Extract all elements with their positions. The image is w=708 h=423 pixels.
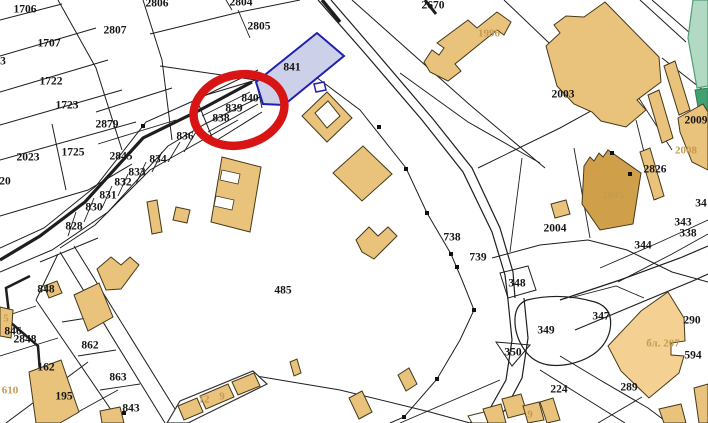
cadastral-map[interactable]: 1706280628042805267028071707384117222003… <box>0 0 708 423</box>
parcel-label-2845: 2845 <box>110 151 133 163</box>
building-label-12: 12 <box>199 394 211 406</box>
building-bar-485-1 <box>349 391 372 419</box>
building-2003 <box>546 2 661 127</box>
parcel-label-834: 834 <box>149 154 167 166</box>
parcel-label-1706: 1706 <box>14 4 37 16</box>
parcel-label-485: 485 <box>274 285 292 297</box>
parcel-label-594: 594 <box>684 350 702 362</box>
parcel-label-831: 831 <box>99 190 117 202</box>
parcel-label-349: 349 <box>537 325 555 337</box>
building-label-2005: 2005 <box>602 190 625 202</box>
parcel-label-1722: 1722 <box>40 76 63 88</box>
building-1996 <box>424 12 511 81</box>
parcel-label-34: 34 <box>695 198 707 210</box>
parcel-label-739: 739 <box>469 252 487 264</box>
parcel-label-738: 738 <box>443 232 461 244</box>
building-t-485 <box>356 227 397 259</box>
map-canvas[interactable]: 1706280628042805267028071707384117222003… <box>0 0 708 423</box>
parcel-label-1707: 1707 <box>38 38 61 50</box>
building-label-бл.-207: бл. 207 <box>646 338 680 350</box>
parcel-label-848: 848 <box>37 284 55 296</box>
parcel-label-2023: 2023 <box>17 152 40 164</box>
parcel-label-3: 3 <box>0 56 6 68</box>
parcel-label-862: 862 <box>81 340 99 352</box>
parcel-label-830: 830 <box>85 202 103 214</box>
parcel-label-2003: 2003 <box>552 89 575 101</box>
parcel-label-290: 290 <box>683 315 701 327</box>
parcel-label-838: 838 <box>212 113 230 125</box>
parcel-label-836: 836 <box>176 131 194 143</box>
parcel-label-2879: 2879 <box>96 119 119 131</box>
building-small-square <box>173 207 190 223</box>
parcel-label-1725: 1725 <box>62 147 85 159</box>
building-843 <box>100 407 124 423</box>
parcel-label-2807: 2807 <box>104 25 127 37</box>
parcel-label-2004: 2004 <box>544 223 567 235</box>
parcel-label-843: 843 <box>122 403 140 415</box>
building-bar-a <box>648 90 673 143</box>
parcel-label-832: 832 <box>114 177 132 189</box>
green-parcel <box>688 0 708 88</box>
building-comb <box>211 157 261 232</box>
building-label-610: 610 <box>2 385 19 397</box>
parcel-label-195: 195 <box>55 391 73 403</box>
building-label-1996: 1996 <box>478 28 501 40</box>
parcel-label-1723: 1723 <box>56 100 79 112</box>
island-349 <box>515 296 611 365</box>
parcel-label-2805: 2805 <box>248 21 271 33</box>
parcel-label-224: 224 <box>550 384 568 396</box>
parcel-label-344: 344 <box>634 240 652 252</box>
parcel-label-2826: 2826 <box>644 164 667 176</box>
parcel-label-840: 840 <box>241 93 259 105</box>
building-tiny <box>290 359 301 376</box>
building-label-9: 9 <box>527 409 533 421</box>
parcel-label-2804: 2804 <box>230 0 253 9</box>
building-bar-b <box>664 61 690 115</box>
green-parcels <box>688 0 708 113</box>
parcel-label-347: 347 <box>592 311 610 323</box>
building-bar-left <box>147 200 162 234</box>
parcel-label-2848: 2848 <box>14 334 37 346</box>
parcel-label-2009: 2009 <box>685 115 708 127</box>
wall-line <box>0 82 252 260</box>
building-bar-485-2 <box>398 368 417 391</box>
building-label-9: 9 <box>219 391 225 403</box>
parcel-label-863: 863 <box>109 372 127 384</box>
parcel-label-348: 348 <box>508 278 526 290</box>
parcel-label-20: 20 <box>0 176 11 188</box>
highlight-notch <box>314 82 326 92</box>
parcel-label-2670: 2670 <box>422 0 445 12</box>
parcel-label-338: 338 <box>679 228 697 240</box>
parcel-label-2806: 2806 <box>146 0 169 10</box>
buildings-layer <box>0 2 708 423</box>
parcel-label-841: 841 <box>283 62 301 74</box>
building-square-485 <box>333 146 392 201</box>
parcel-label-828: 828 <box>65 221 83 233</box>
building-small-2004 <box>551 200 570 218</box>
parcel-label-289: 289 <box>620 382 638 394</box>
parcel-label-350: 350 <box>504 347 522 359</box>
building-label-5: 5 <box>3 313 9 325</box>
parcel-label-162: 162 <box>37 362 55 374</box>
building-label-2008: 2008 <box>675 145 698 157</box>
building-plus <box>97 257 139 290</box>
